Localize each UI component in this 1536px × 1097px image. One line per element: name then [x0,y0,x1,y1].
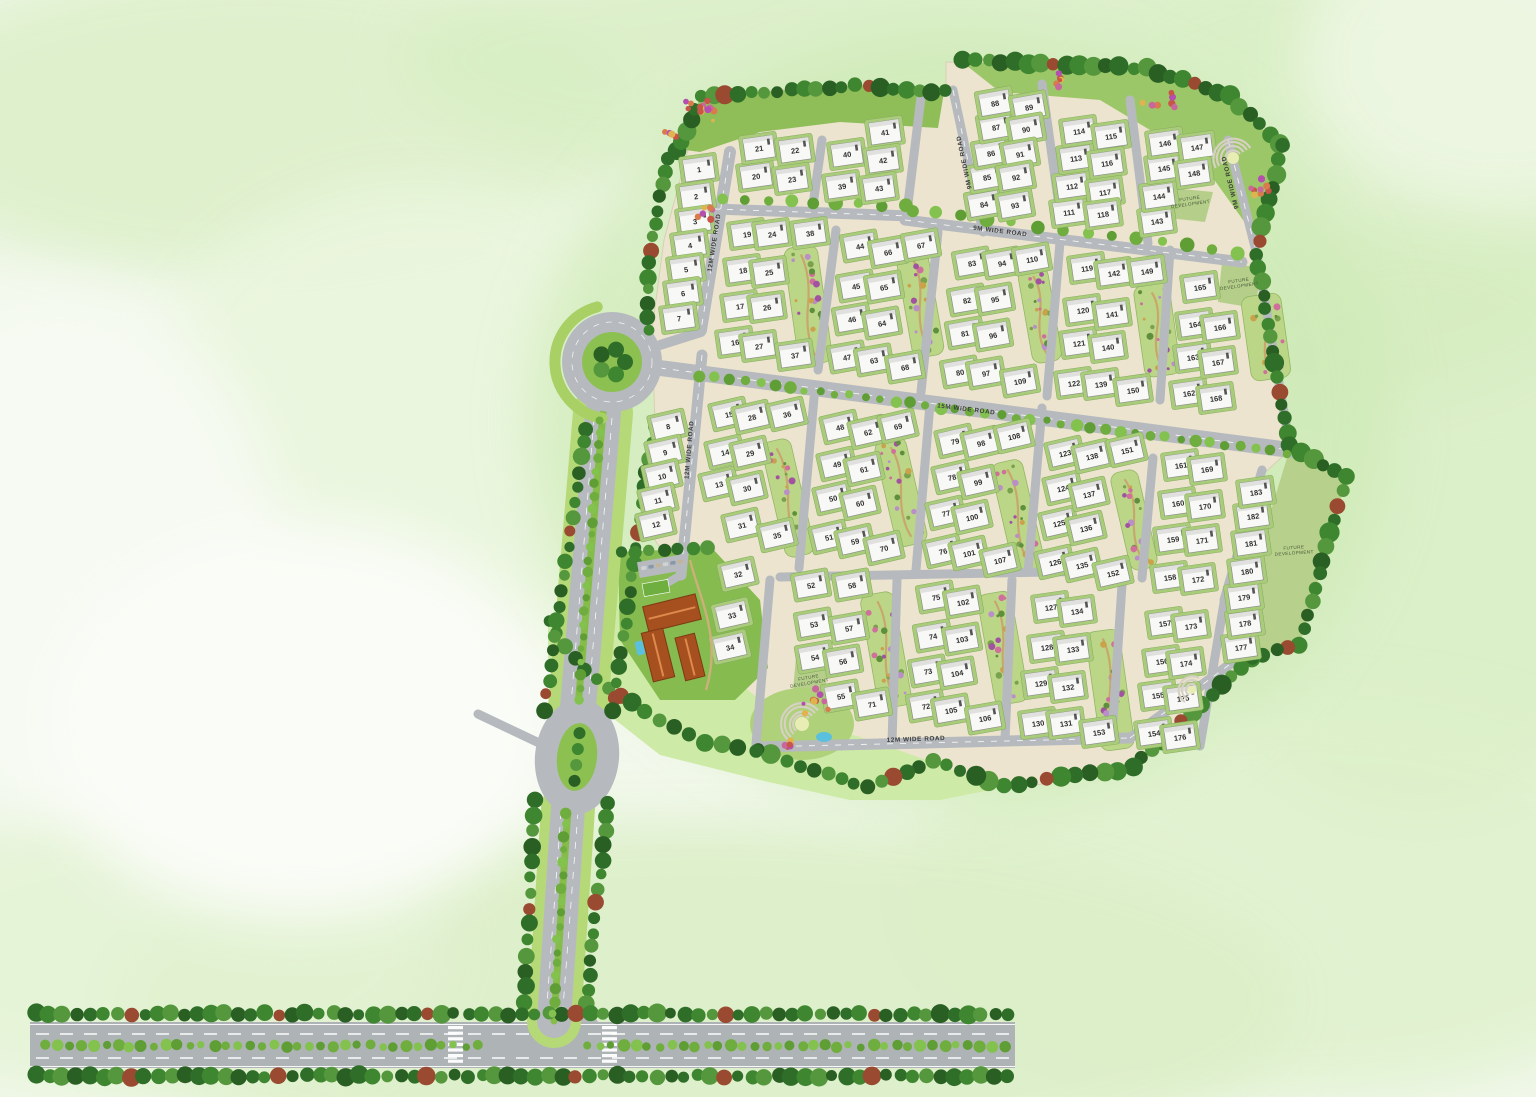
plot-number: 140 [1101,342,1115,353]
plot-number: 38 [805,229,815,239]
plot-number: 160 [1171,498,1185,509]
plot-number: 149 [1140,266,1154,277]
plot: 27 [738,329,780,363]
plot: 25 [748,255,790,289]
plot-number: 145 [1157,163,1171,174]
plot: 148 [1173,156,1215,190]
plot-number: 73 [923,667,933,677]
plot-number: 179 [1237,592,1251,603]
plot-number: 139 [1094,379,1108,390]
plot-number: 147 [1190,142,1204,153]
plot-number: 171 [1195,535,1209,546]
plot-number: 114 [1072,126,1086,137]
plot-number: 63 [869,356,879,366]
plot: 43 [858,171,900,205]
plot-number: 153 [1092,727,1106,738]
plot-number: 90 [1021,125,1031,135]
plot: 166 [1199,310,1241,344]
plot: 149 [1126,254,1168,288]
plot-number: 80 [955,368,965,378]
plot-number: 55 [836,692,846,702]
plot-number: 120 [1076,305,1090,316]
plot-number: 19 [742,230,752,240]
plot: 39 [821,169,863,203]
plot: 132 [1047,670,1089,704]
plot-number: 117 [1098,187,1111,198]
plot: 180 [1226,554,1268,588]
plot: 165 [1179,270,1221,304]
plot-number: 87 [991,123,1001,133]
plot-number: 47 [842,353,852,363]
plot-number: 162 [1182,388,1196,399]
plot-number: 43 [874,184,884,194]
plot: 167 [1197,345,1239,379]
plot: 102 [942,584,984,619]
plot-number: 82 [962,296,972,306]
plot: 141 [1091,297,1133,331]
plot: 173 [1170,609,1212,643]
plot: 40 [826,137,868,171]
plot: 183 [1235,475,1277,509]
plot: 172 [1177,562,1219,596]
plot-number: 65 [879,283,889,293]
plot-number: 178 [1238,618,1252,629]
site-plan-svg: 1234567891011121314151617181920212223242… [0,0,1536,1097]
plot-number: 122 [1067,378,1081,389]
plot: 134 [1056,594,1098,628]
plot-number: 89 [1024,103,1034,113]
plot-number: 134 [1070,606,1084,617]
plot-number: 45 [851,282,861,292]
plot: 168 [1195,381,1237,415]
plot-number: 174 [1179,658,1193,669]
plot-number: 85 [982,173,992,183]
plot: 22 [774,133,816,167]
plot: 110 [1011,241,1053,276]
plot-number: 180 [1240,566,1254,577]
pond [816,732,832,742]
plot-number: 127 [1044,602,1058,613]
plot-number: 39 [837,182,847,192]
plot-number: 150 [1126,385,1140,396]
plot-number: 116 [1100,158,1113,169]
plot-number: 143 [1150,216,1164,227]
plot: 67 [900,227,942,262]
plot-number: 91 [1015,150,1025,160]
plot-number: 148 [1187,168,1201,179]
plot-number: 119 [1080,263,1093,274]
plot-number: 67 [916,241,926,251]
plot: 140 [1087,330,1129,364]
plot: 171 [1181,523,1223,557]
plot-number: 131 [1059,718,1073,729]
plot-number: 21 [754,144,764,154]
plot: 95 [974,281,1016,316]
plot-number: 132 [1061,682,1075,693]
plot: 58 [831,567,873,602]
plot-number: 146 [1158,138,1172,149]
plot-number: 129 [1034,678,1048,689]
plot: 42 [862,143,904,177]
plot: 109 [999,363,1041,398]
plot: 71 [851,686,893,721]
plot: 169 [1186,452,1228,486]
plot-number: 53 [809,620,819,630]
plot-number: 16 [730,338,740,348]
plot-number: 142 [1107,268,1121,279]
plot: 64 [861,305,903,340]
plot-number: 121 [1072,338,1086,349]
plot-number: 159 [1166,534,1180,545]
plot: 93 [994,187,1036,222]
plot-number: 37 [790,351,800,361]
plot-number: 25 [764,268,774,278]
plot: 68 [884,349,926,384]
plot-number: 161 [1174,460,1188,471]
plot-number: 177 [1234,642,1248,653]
plot-number: 57 [844,624,854,634]
plot-number: 118 [1096,209,1109,220]
plot-number: 68 [900,363,910,373]
plot: 96 [972,317,1014,352]
plot: 116 [1086,146,1128,180]
plot: 21 [738,131,780,165]
plot-number: 86 [986,149,996,159]
plot-number: 81 [960,329,970,339]
plot: 24 [751,217,793,251]
plot-number: 133 [1066,644,1080,655]
plot-number: 27 [754,342,764,352]
plot-number: 56 [838,657,848,667]
plot-number: 83 [967,259,977,269]
plot: 106 [964,700,1006,735]
plot-number: 92 [1011,173,1021,183]
plot-number: 158 [1163,572,1177,583]
plot-number: 93 [1010,201,1020,211]
plot-number: 115 [1104,131,1117,142]
plot: 174 [1165,646,1207,680]
plot-number: 173 [1184,621,1198,632]
plot: 7 [658,301,700,335]
plot: 26 [746,290,788,324]
plot-number: 172 [1191,574,1205,585]
plot: 37 [774,338,816,372]
plot-number: 181 [1244,538,1258,549]
plot-number: 167 [1211,357,1225,368]
plot: 103 [941,621,983,656]
plot-number: 170 [1198,501,1212,512]
plot-number: 95 [990,295,1000,305]
plot-number: 52 [806,581,816,591]
road-segment [892,580,897,742]
plot-number: 141 [1105,309,1119,320]
plot-number: 20 [751,172,761,182]
plot-number: 17 [735,302,745,312]
plot-number: 18 [738,266,748,276]
plot-number: 46 [847,315,857,325]
plot: 56 [822,643,864,678]
plot-number: 112 [1065,181,1078,192]
plot: 176 [1159,720,1201,754]
plot-number: 157 [1158,618,1172,629]
plot: 104 [936,655,978,690]
plot: 57 [828,610,870,645]
plot-number: 130 [1031,718,1045,729]
plot: 23 [771,162,813,196]
plot-number: 66 [883,248,893,258]
plot-number: 166 [1213,322,1227,333]
plot: 170 [1184,489,1226,523]
plot-number: 42 [878,156,888,166]
plot-number: 183 [1249,487,1263,498]
plot-number: 58 [847,581,857,591]
plot-number: 182 [1246,511,1260,522]
plot: 38 [789,216,831,250]
plot-number: 41 [880,128,890,138]
plot-number: 71 [867,700,877,710]
plot-number: 169 [1200,464,1214,475]
plot: 118 [1082,197,1124,231]
plot-number: 40 [842,150,852,160]
plot-number: 128 [1040,642,1054,653]
plot-number: 88 [990,99,1000,109]
plot-number: 165 [1193,282,1207,293]
plot-number: 97 [981,369,991,379]
plot-number: 168 [1209,393,1223,404]
plot: 52 [790,567,832,602]
plot: 133 [1052,632,1094,666]
plot-number: 26 [762,303,772,313]
plot-number: 75 [931,593,941,603]
plot: 153 [1078,715,1120,749]
site-plan-canvas: 1234567891011121314151617181920212223242… [0,0,1536,1097]
plot: 20 [735,159,777,193]
plot-number: 176 [1173,732,1187,743]
plot: 150 [1112,373,1154,407]
plot-number: 111 [1063,207,1076,218]
plot-number: 113 [1069,153,1082,164]
plot-number: 23 [787,175,797,185]
plot-number: 96 [988,331,998,341]
plot-number: 72 [921,702,931,712]
plot-number: 144 [1152,191,1166,202]
plot-number: 22 [790,146,800,156]
plot: 65 [863,269,905,304]
